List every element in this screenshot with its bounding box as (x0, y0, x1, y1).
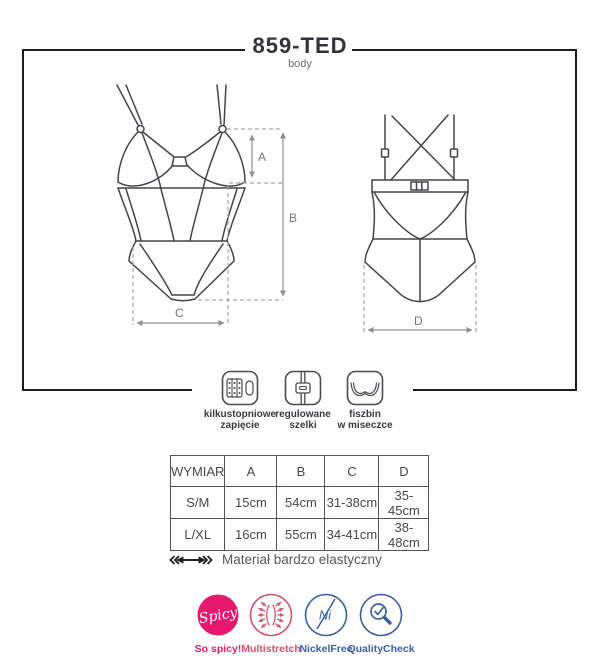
size-table-header-row: WYMIAR A B C D (171, 456, 429, 487)
dim-label-b: B (289, 211, 297, 225)
so-spicy-icon: Spicy (196, 593, 240, 637)
nickel-free-icon: Ni (304, 593, 348, 637)
value-cell: 15cm (225, 487, 277, 519)
value-cell: 38-48cm (379, 519, 429, 551)
underwire-cup-icon (346, 370, 384, 406)
col-header-b: B (277, 456, 325, 487)
stretch-arrow-icon (168, 553, 214, 567)
dim-label-c: C (175, 306, 184, 320)
value-cell: 54cm (277, 487, 325, 519)
front-bodysuit-sketch (117, 85, 245, 301)
frame-border (23, 50, 576, 390)
hook-closure-icon (221, 370, 259, 406)
material-note-text: Materiał bardzo elastyczny (222, 552, 382, 567)
size-guide-page: 859-TED body (0, 0, 600, 663)
dim-label-a: A (258, 150, 266, 164)
col-header-d: D (379, 456, 429, 487)
quality-check-icon (359, 593, 403, 637)
col-header-c: C (325, 456, 379, 487)
size-table: WYMIAR A B C D S/M 15cm 54cm 31-38cm 35-… (170, 455, 429, 551)
col-header-a: A (225, 456, 277, 487)
badge-quality-check: QualityCheck (346, 593, 416, 655)
table-row: L/XL 16cm 55cm 34-41cm 38-48cm (171, 519, 429, 551)
measurement-diagram: A B C D (22, 49, 577, 392)
size-cell: S/M (171, 487, 225, 519)
dim-label-d: D (414, 314, 423, 328)
dimension-lines (133, 129, 476, 334)
feature-label-line1: fiszbin (317, 409, 413, 420)
value-cell: 16cm (225, 519, 277, 551)
value-cell: 31-38cm (325, 487, 379, 519)
feature-label-line2: w miseczce (317, 420, 413, 431)
material-note: Materiał bardzo elastyczny (168, 552, 382, 567)
size-cell: L/XL (171, 519, 225, 551)
badge-label: QualityCheck (346, 643, 416, 655)
feature-underwire-cup: fiszbin w miseczce (317, 370, 413, 431)
table-row: S/M 15cm 54cm 31-38cm 35-45cm (171, 487, 429, 519)
value-cell: 34-41cm (325, 519, 379, 551)
col-header-wymiar: WYMIAR (171, 456, 225, 487)
multistretch-icon (249, 593, 293, 637)
back-bodysuit-sketch (365, 115, 475, 302)
value-cell: 35-45cm (379, 487, 429, 519)
value-cell: 55cm (277, 519, 325, 551)
